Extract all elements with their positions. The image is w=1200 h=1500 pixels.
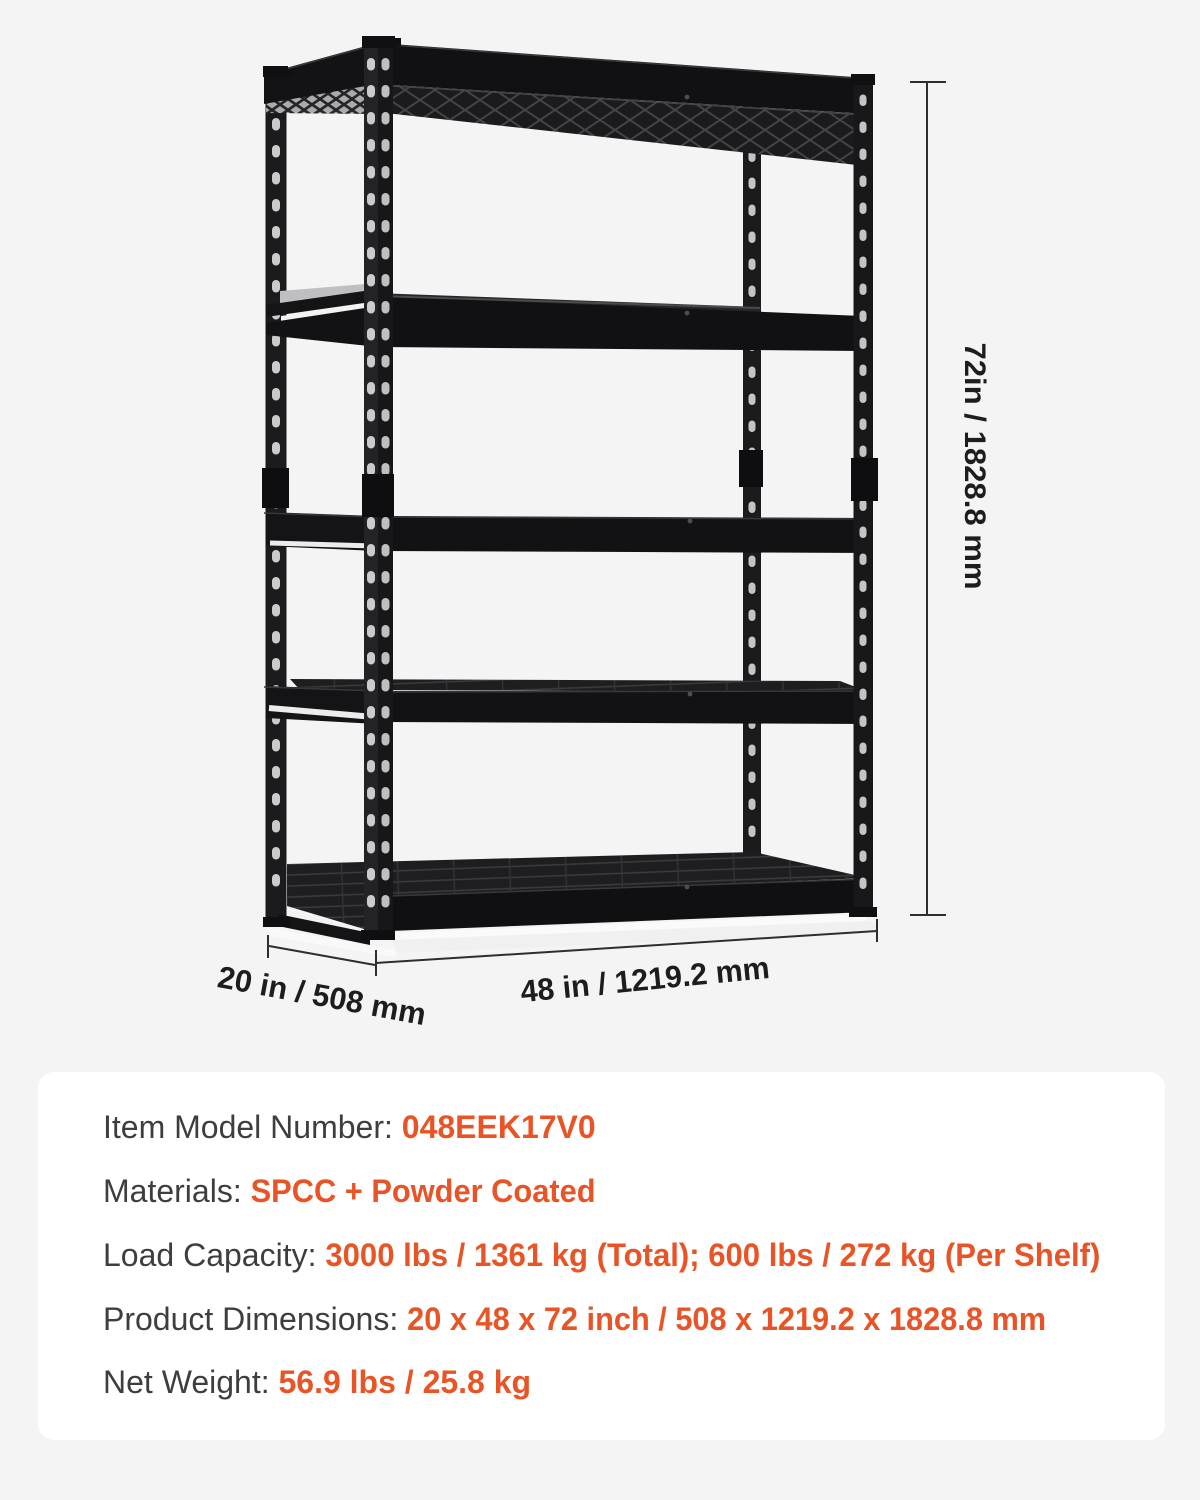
svg-text:Load Capacity: 3000 lbs / 1361: Load Capacity: 3000 lbs / 1361 kg (Total… (103, 1237, 1100, 1273)
svg-text:Materials: SPCC + Powder Coate: Materials: SPCC + Powder Coated (103, 1173, 596, 1209)
svg-text:Item Model Number: 048EEK17V0: Item Model Number: 048EEK17V0 (103, 1109, 596, 1145)
svg-text:72in / 1828.8 mm: 72in / 1828.8 mm (958, 343, 991, 590)
svg-text:Net Weight: 56.9 lbs / 25.8 kg: Net Weight: 56.9 lbs / 25.8 kg (103, 1364, 531, 1400)
svg-text:Product Dimensions: 20 x 48 x: Product Dimensions: 20 x 48 x 72 inch / … (103, 1301, 1046, 1337)
